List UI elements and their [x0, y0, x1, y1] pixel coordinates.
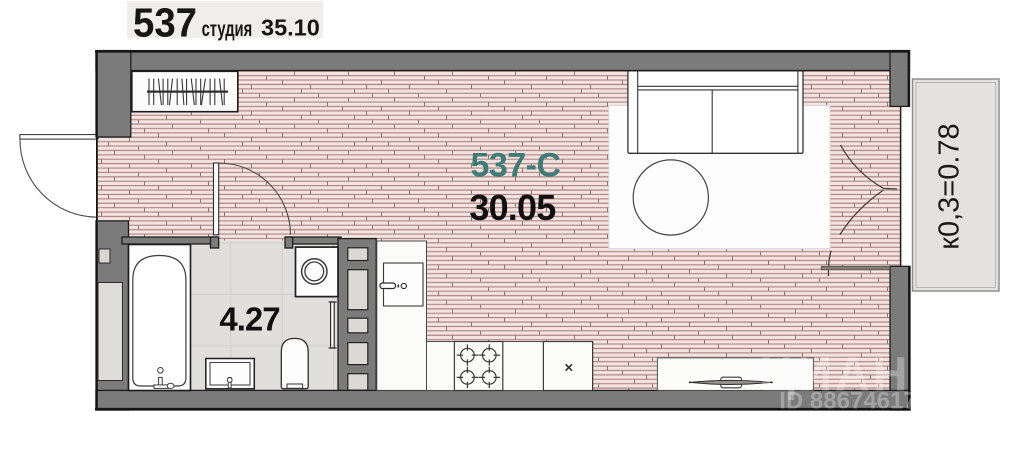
svg-text:4.27: 4.27	[219, 300, 279, 337]
svg-text:студия: студия	[202, 18, 253, 41]
svg-text:ID 88674617: ID 88674617	[779, 388, 916, 415]
svg-text:537: 537	[133, 0, 197, 46]
svg-text:30.05: 30.05	[469, 187, 556, 228]
svg-text:537-C: 537-C	[470, 146, 560, 184]
svg-text:к0,3=0.78: к0,3=0.78	[934, 123, 966, 249]
svg-text:35.10: 35.10	[261, 14, 320, 40]
